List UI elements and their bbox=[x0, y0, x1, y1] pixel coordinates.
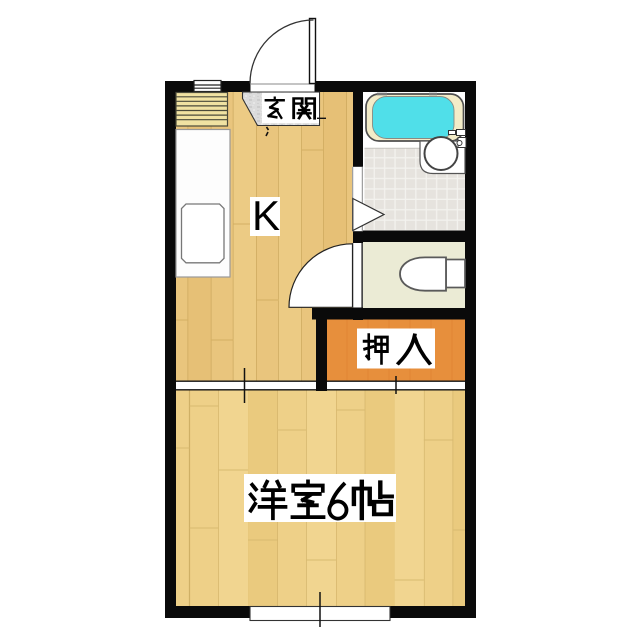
svg-text:K: K bbox=[252, 192, 280, 239]
